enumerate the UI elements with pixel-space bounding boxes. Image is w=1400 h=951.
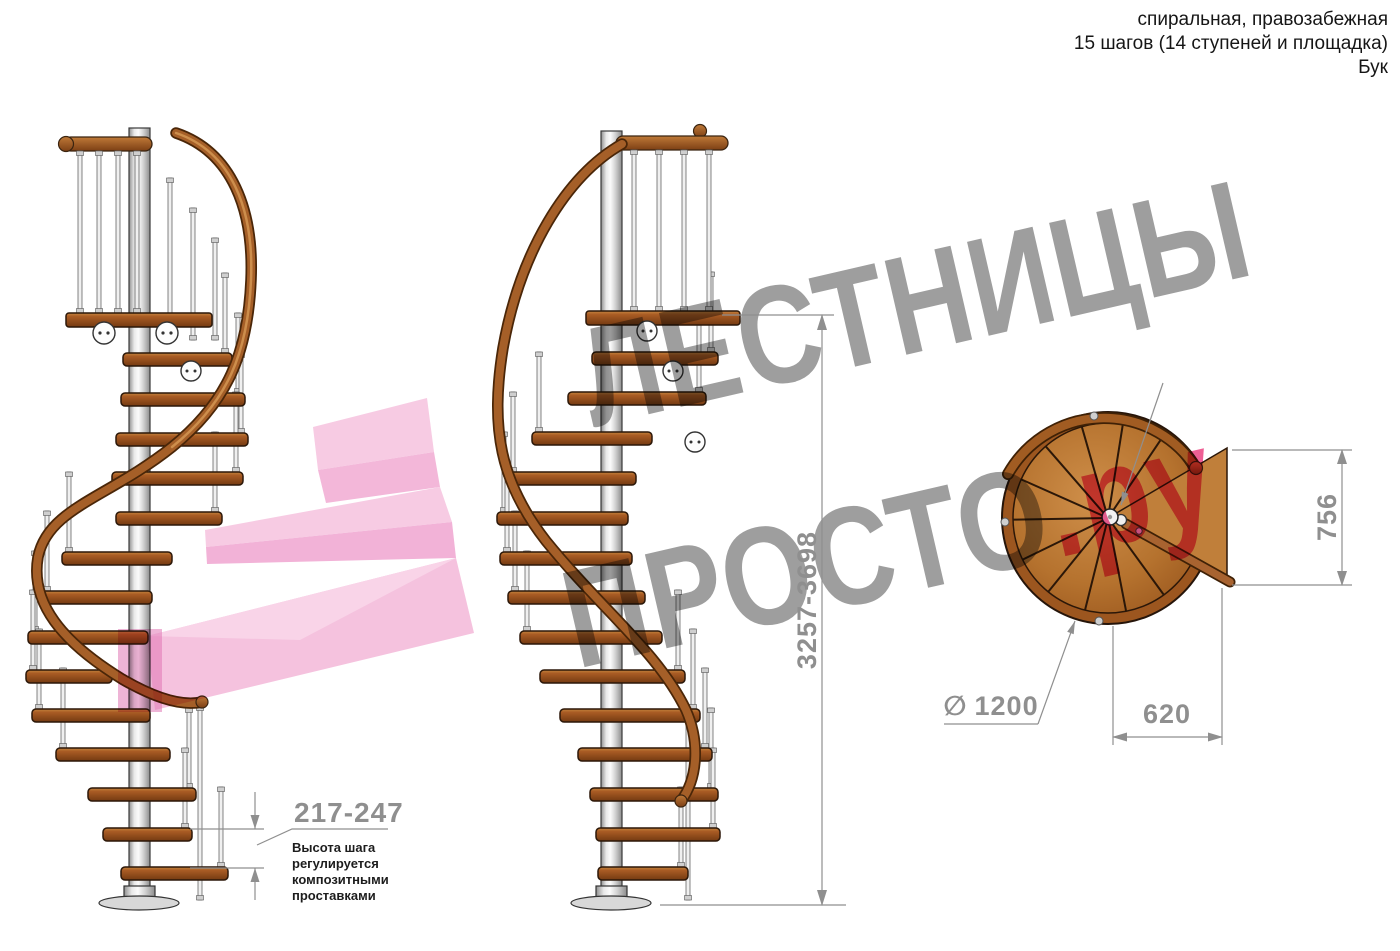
dimension-annotations: 3257-3698 756 620 ∅1200: [0, 0, 1400, 951]
dim-total-height: 3257-3698: [660, 314, 846, 906]
title-block: спиральная, правозабежная 15 шагов (14 с…: [1074, 8, 1388, 80]
dim-exit-width: 620: [1112, 588, 1223, 745]
title-material: Бук: [1074, 56, 1388, 80]
dim-landing-depth-label: 756: [1312, 493, 1342, 541]
dim-total-height-label: 3257-3698: [792, 531, 822, 669]
title-type: спиральная, правозабежная: [1074, 8, 1388, 32]
dim-exit-width-label: 620: [1143, 699, 1191, 729]
dim-diameter: ∅1200: [943, 621, 1075, 724]
leader-center-pole: [1121, 383, 1163, 505]
step-height-note: Высота шага регулируется композитными пр…: [292, 840, 389, 904]
dim-diameter-label: ∅1200: [943, 691, 1038, 721]
dim-step-height-label: 217-247: [294, 797, 404, 828]
drawing-canvas: ЛЕСТНИЦЫ ПРОСТО.ру 3257-3698 756: [0, 0, 1400, 951]
title-steps: 15 шагов (14 ступеней и площадка): [1074, 32, 1388, 56]
dim-landing-depth: 756: [1232, 449, 1352, 586]
